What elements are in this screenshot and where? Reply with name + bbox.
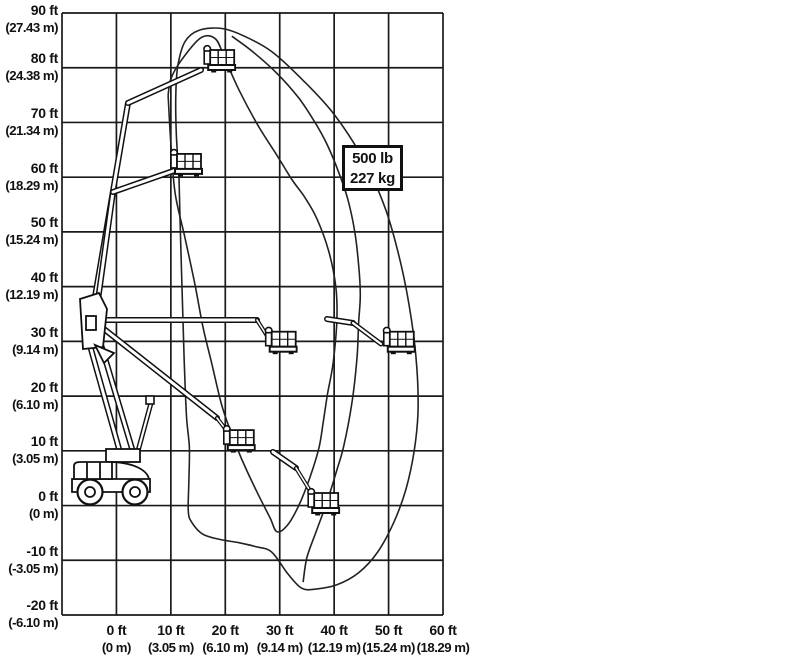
platform-basket <box>384 327 415 354</box>
y-tick-label: 70 ft(21.34 m) <box>0 104 58 140</box>
y-tick-label: 30 ft(9.14 m) <box>0 323 58 359</box>
y-tick-label: 60 ft(18.29 m) <box>0 159 58 195</box>
platform-basket <box>224 426 255 453</box>
y-tick-label: 20 ft(6.10 m) <box>0 378 58 414</box>
capacity-label-box: 500 lb 227 kg <box>342 145 403 191</box>
riser-elbow <box>80 293 114 363</box>
y-tick-label: 90 ft(27.43 m) <box>0 1 58 37</box>
x-tick-label: 60 ft(18.29 m) <box>408 621 478 656</box>
y-tick-label: 0 ft(0 m) <box>0 487 58 523</box>
y-tick-label: 10 ft(3.05 m) <box>0 432 58 468</box>
platform-basket <box>171 150 202 177</box>
grid <box>62 13 443 615</box>
machine <box>72 293 154 505</box>
reach-envelope-chart: 500 lb 227 kg 90 ft(27.43 m)80 ft(24.38 … <box>0 0 800 656</box>
capacity-pounds: 500 lb <box>345 149 400 169</box>
y-tick-label: 40 ft(12.19 m) <box>0 268 58 304</box>
mid-envelope-curve <box>232 36 360 582</box>
platform-baskets <box>171 46 415 516</box>
platform-basket <box>308 489 339 516</box>
chart-canvas <box>0 0 800 656</box>
boom-horizontal-30ft <box>101 320 269 339</box>
chassis <box>72 449 150 505</box>
platform-basket <box>265 327 296 354</box>
capacity-kilograms: 227 kg <box>345 169 400 189</box>
boom-positions <box>89 70 381 489</box>
y-tick-label: -20 ft(-6.10 m) <box>0 596 58 632</box>
y-tick-label: -10 ft(-3.05 m) <box>0 542 58 578</box>
inner-envelope-curve <box>168 36 337 532</box>
boom-stub-bottom-platform <box>273 452 309 489</box>
boom-to-top-platform <box>89 70 201 332</box>
y-tick-label: 50 ft(15.24 m) <box>0 213 58 249</box>
riser-arms <box>89 338 154 456</box>
platform-basket <box>204 46 235 73</box>
y-tick-label: 80 ft(24.38 m) <box>0 49 58 85</box>
